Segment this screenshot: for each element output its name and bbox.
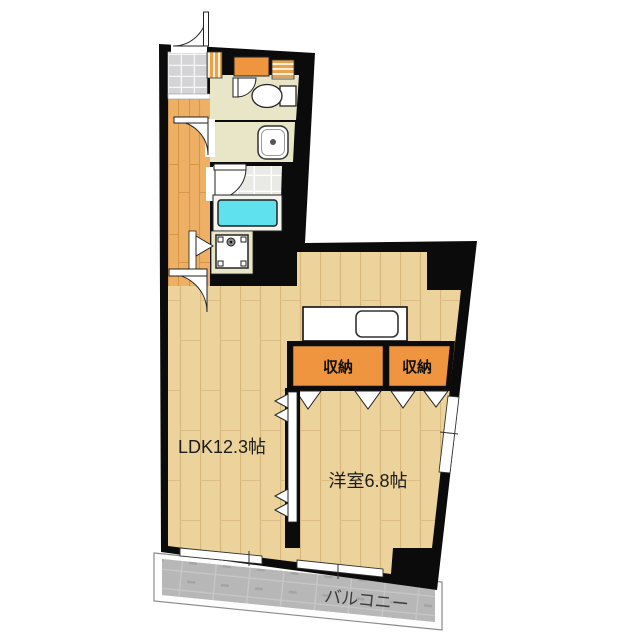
washer-faucet-dot — [230, 241, 233, 244]
washroom-door-leaf — [174, 117, 208, 123]
toilet-room — [210, 75, 299, 120]
storage-right-label: 収納 — [402, 358, 432, 376]
western-room-label: 洋室6.8帖 — [328, 471, 407, 491]
washer-pan-corner — [241, 261, 246, 266]
shoe-cabinet — [234, 57, 269, 76]
floorplan-canvas: 収納 収納 LDK12.3帖 洋室6.8帖 バルコニー — [0, 0, 640, 640]
hall-door-leaf — [169, 269, 207, 276]
kitchen-sink-icon — [356, 311, 398, 337]
storage-closets: 収納 収納 — [287, 341, 455, 409]
kitchen — [303, 307, 407, 341]
washer-pan-corner — [218, 261, 223, 266]
floorplan-image: 収納 収納 LDK12.3帖 洋室6.8帖 バルコニー — [0, 0, 640, 640]
entrance-door-arc — [173, 12, 207, 46]
washer-pan-corner — [241, 237, 246, 242]
bathtub-icon — [218, 200, 277, 226]
entrance-tile-floor — [168, 52, 207, 97]
bathroom-door-leaf — [214, 164, 246, 170]
ldk-label: LDK12.3帖 — [178, 437, 266, 457]
toilet-icon — [252, 85, 282, 108]
washer-door-strip — [189, 231, 196, 274]
entrance-door-leaf — [204, 12, 209, 46]
entrance-door — [171, 12, 209, 53]
shoe-cabinet-louver-icon — [207, 52, 222, 78]
storage-left-label: 収納 — [323, 358, 353, 376]
toilet-door-leaf — [233, 78, 238, 97]
bathroom — [206, 164, 282, 231]
partition-door-track — [288, 392, 297, 522]
shelf-louver-icon — [272, 60, 294, 79]
entrance-step — [168, 94, 210, 99]
washbasin-drain — [270, 139, 276, 145]
washer-pan-corner — [218, 237, 223, 242]
